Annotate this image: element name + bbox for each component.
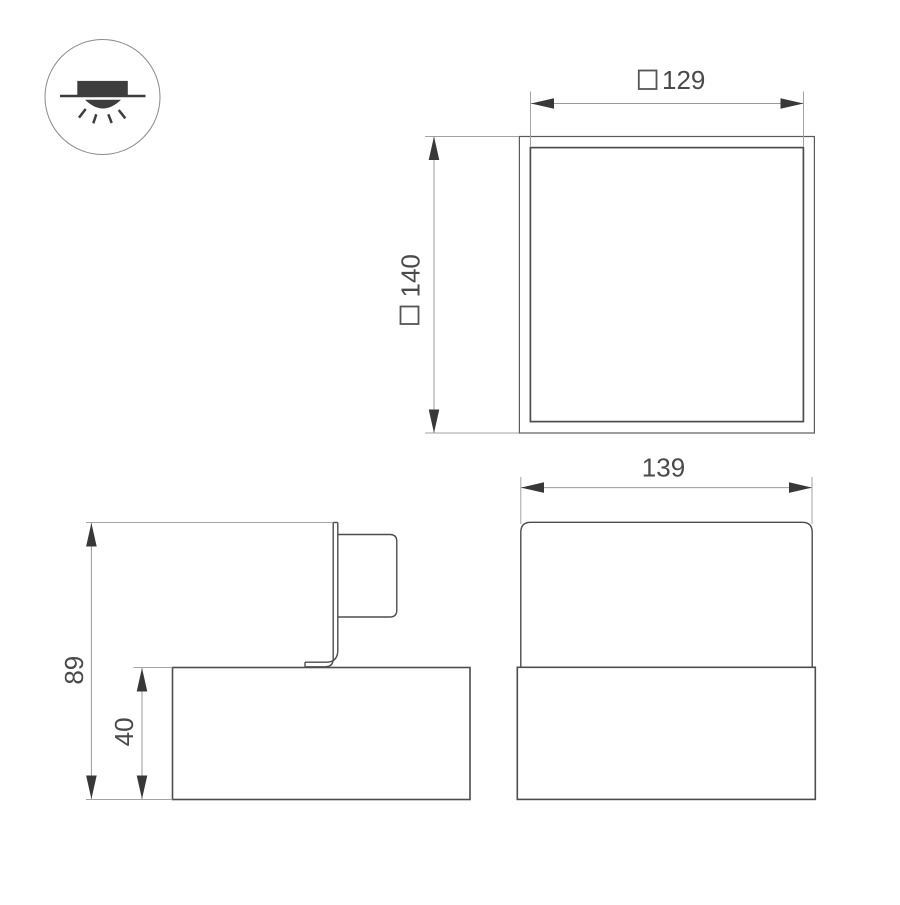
svg-text:40: 40	[109, 717, 139, 746]
svg-text:129: 129	[662, 65, 705, 95]
svg-text:139: 139	[642, 453, 685, 483]
svg-text:140: 140	[396, 254, 426, 297]
svg-text:89: 89	[59, 656, 89, 685]
